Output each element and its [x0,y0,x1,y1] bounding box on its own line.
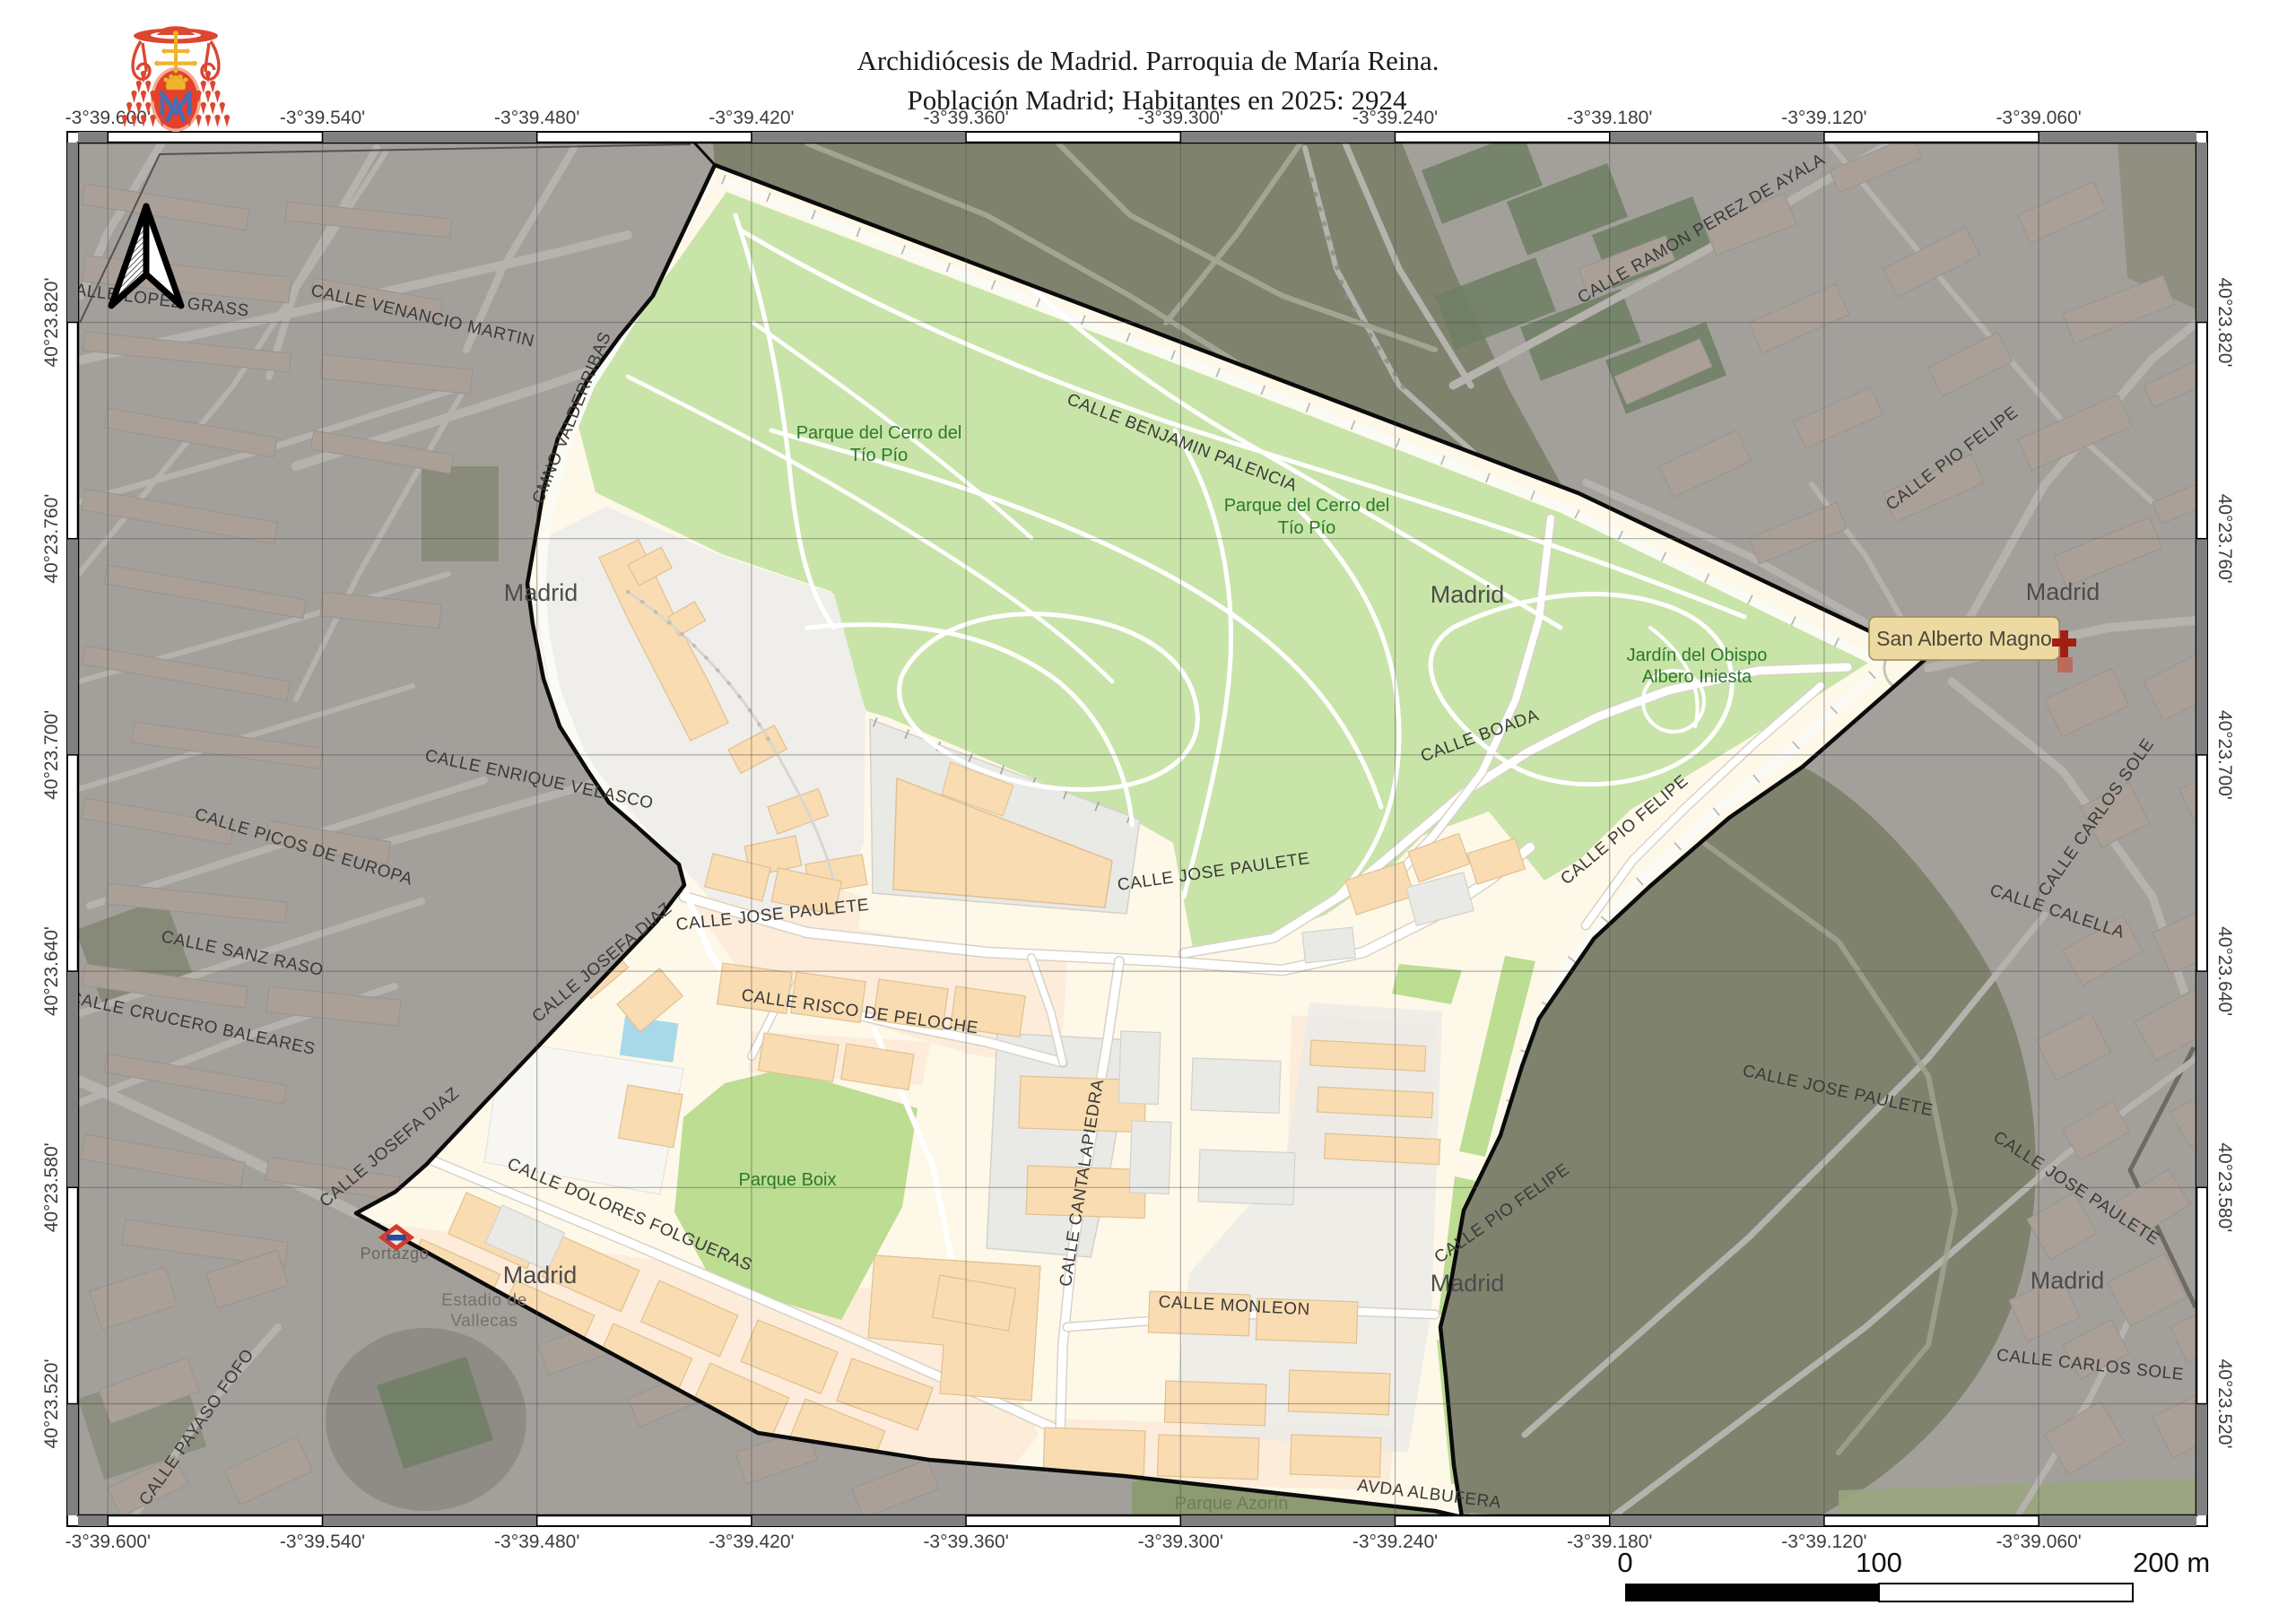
svg-text:40°23.700': 40°23.700' [2214,710,2235,800]
svg-text:Parque Azorín: Parque Azorín [1175,1494,1289,1514]
svg-text:San Alberto Magno: San Alberto Magno [1876,627,2052,650]
svg-text:40°23.820': 40°23.820' [2214,278,2235,368]
svg-text:Parque del Cerro del: Parque del Cerro del [796,423,962,443]
svg-text:Tío Pío: Tío Pío [850,446,908,465]
svg-text:40°23.820': 40°23.820' [41,278,62,368]
svg-text:-3°39.240': -3°39.240' [1352,1532,1438,1552]
svg-text:Tío Pío: Tío Pío [1278,518,1335,538]
svg-text:Archidiócesis de Madrid. Parro: Archidiócesis de Madrid. Parroquia de Ma… [857,45,1439,76]
svg-text:-3°39.180': -3°39.180' [1567,1532,1652,1552]
svg-text:200 m: 200 m [2133,1547,2210,1578]
svg-text:Madrid: Madrid [2031,1267,2105,1294]
svg-text:40°23.760': 40°23.760' [2214,494,2235,584]
svg-text:Estadio de: Estadio de [441,1291,527,1310]
svg-text:-3°39.180': -3°39.180' [1567,108,1652,128]
svg-text:40°23.580': 40°23.580' [41,1142,62,1232]
svg-text:Madrid: Madrid [503,1262,578,1289]
svg-text:40°23.520': 40°23.520' [2214,1359,2235,1449]
svg-text:40°23.520': 40°23.520' [41,1359,62,1449]
svg-text:40°23.580': 40°23.580' [2214,1142,2235,1232]
svg-text:-3°39.480': -3°39.480' [494,108,579,128]
svg-text:-3°39.120': -3°39.120' [1781,108,1866,128]
svg-text:40°23.760': 40°23.760' [41,494,62,584]
svg-text:100: 100 [1856,1547,1902,1578]
svg-text:-3°39.060': -3°39.060' [1996,1532,2081,1552]
svg-text:-3°39.420': -3°39.420' [709,1532,794,1552]
svg-text:Portazgo: Portazgo [361,1245,430,1263]
svg-text:-3°39.420': -3°39.420' [709,108,794,128]
svg-text:-3°39.540': -3°39.540' [280,1532,365,1552]
svg-text:-3°39.120': -3°39.120' [1781,1532,1866,1552]
svg-text:-3°39.480': -3°39.480' [494,1532,579,1552]
svg-text:-3°39.540': -3°39.540' [280,108,365,128]
svg-text:-3°39.360': -3°39.360' [923,1532,1008,1552]
svg-text:-3°39.600': -3°39.600' [65,1532,151,1552]
svg-text:Albero Iniesta: Albero Iniesta [1642,667,1752,687]
svg-text:Jardín del Obispo: Jardín del Obispo [1627,646,1768,665]
svg-text:Parque Boix: Parque Boix [739,1170,837,1190]
svg-text:Población Madrid; Habitantes e: Población Madrid; Habitantes en 2025: 29… [907,84,1407,116]
svg-text:Vallecas: Vallecas [450,1312,517,1331]
svg-text:Madrid: Madrid [2026,578,2100,605]
svg-text:40°23.640': 40°23.640' [41,926,62,1016]
svg-text:Parque del Cerro del: Parque del Cerro del [1224,496,1390,516]
svg-text:Madrid: Madrid [1431,1270,1505,1297]
svg-text:Madrid: Madrid [1431,581,1505,608]
svg-text:-3°39.300': -3°39.300' [1138,1532,1223,1552]
svg-text:-3°39.060': -3°39.060' [1996,108,2081,128]
svg-text:40°23.640': 40°23.640' [2214,926,2235,1016]
svg-text:0: 0 [1617,1547,1632,1578]
svg-text:Madrid: Madrid [504,579,578,606]
svg-text:40°23.700': 40°23.700' [41,710,62,800]
